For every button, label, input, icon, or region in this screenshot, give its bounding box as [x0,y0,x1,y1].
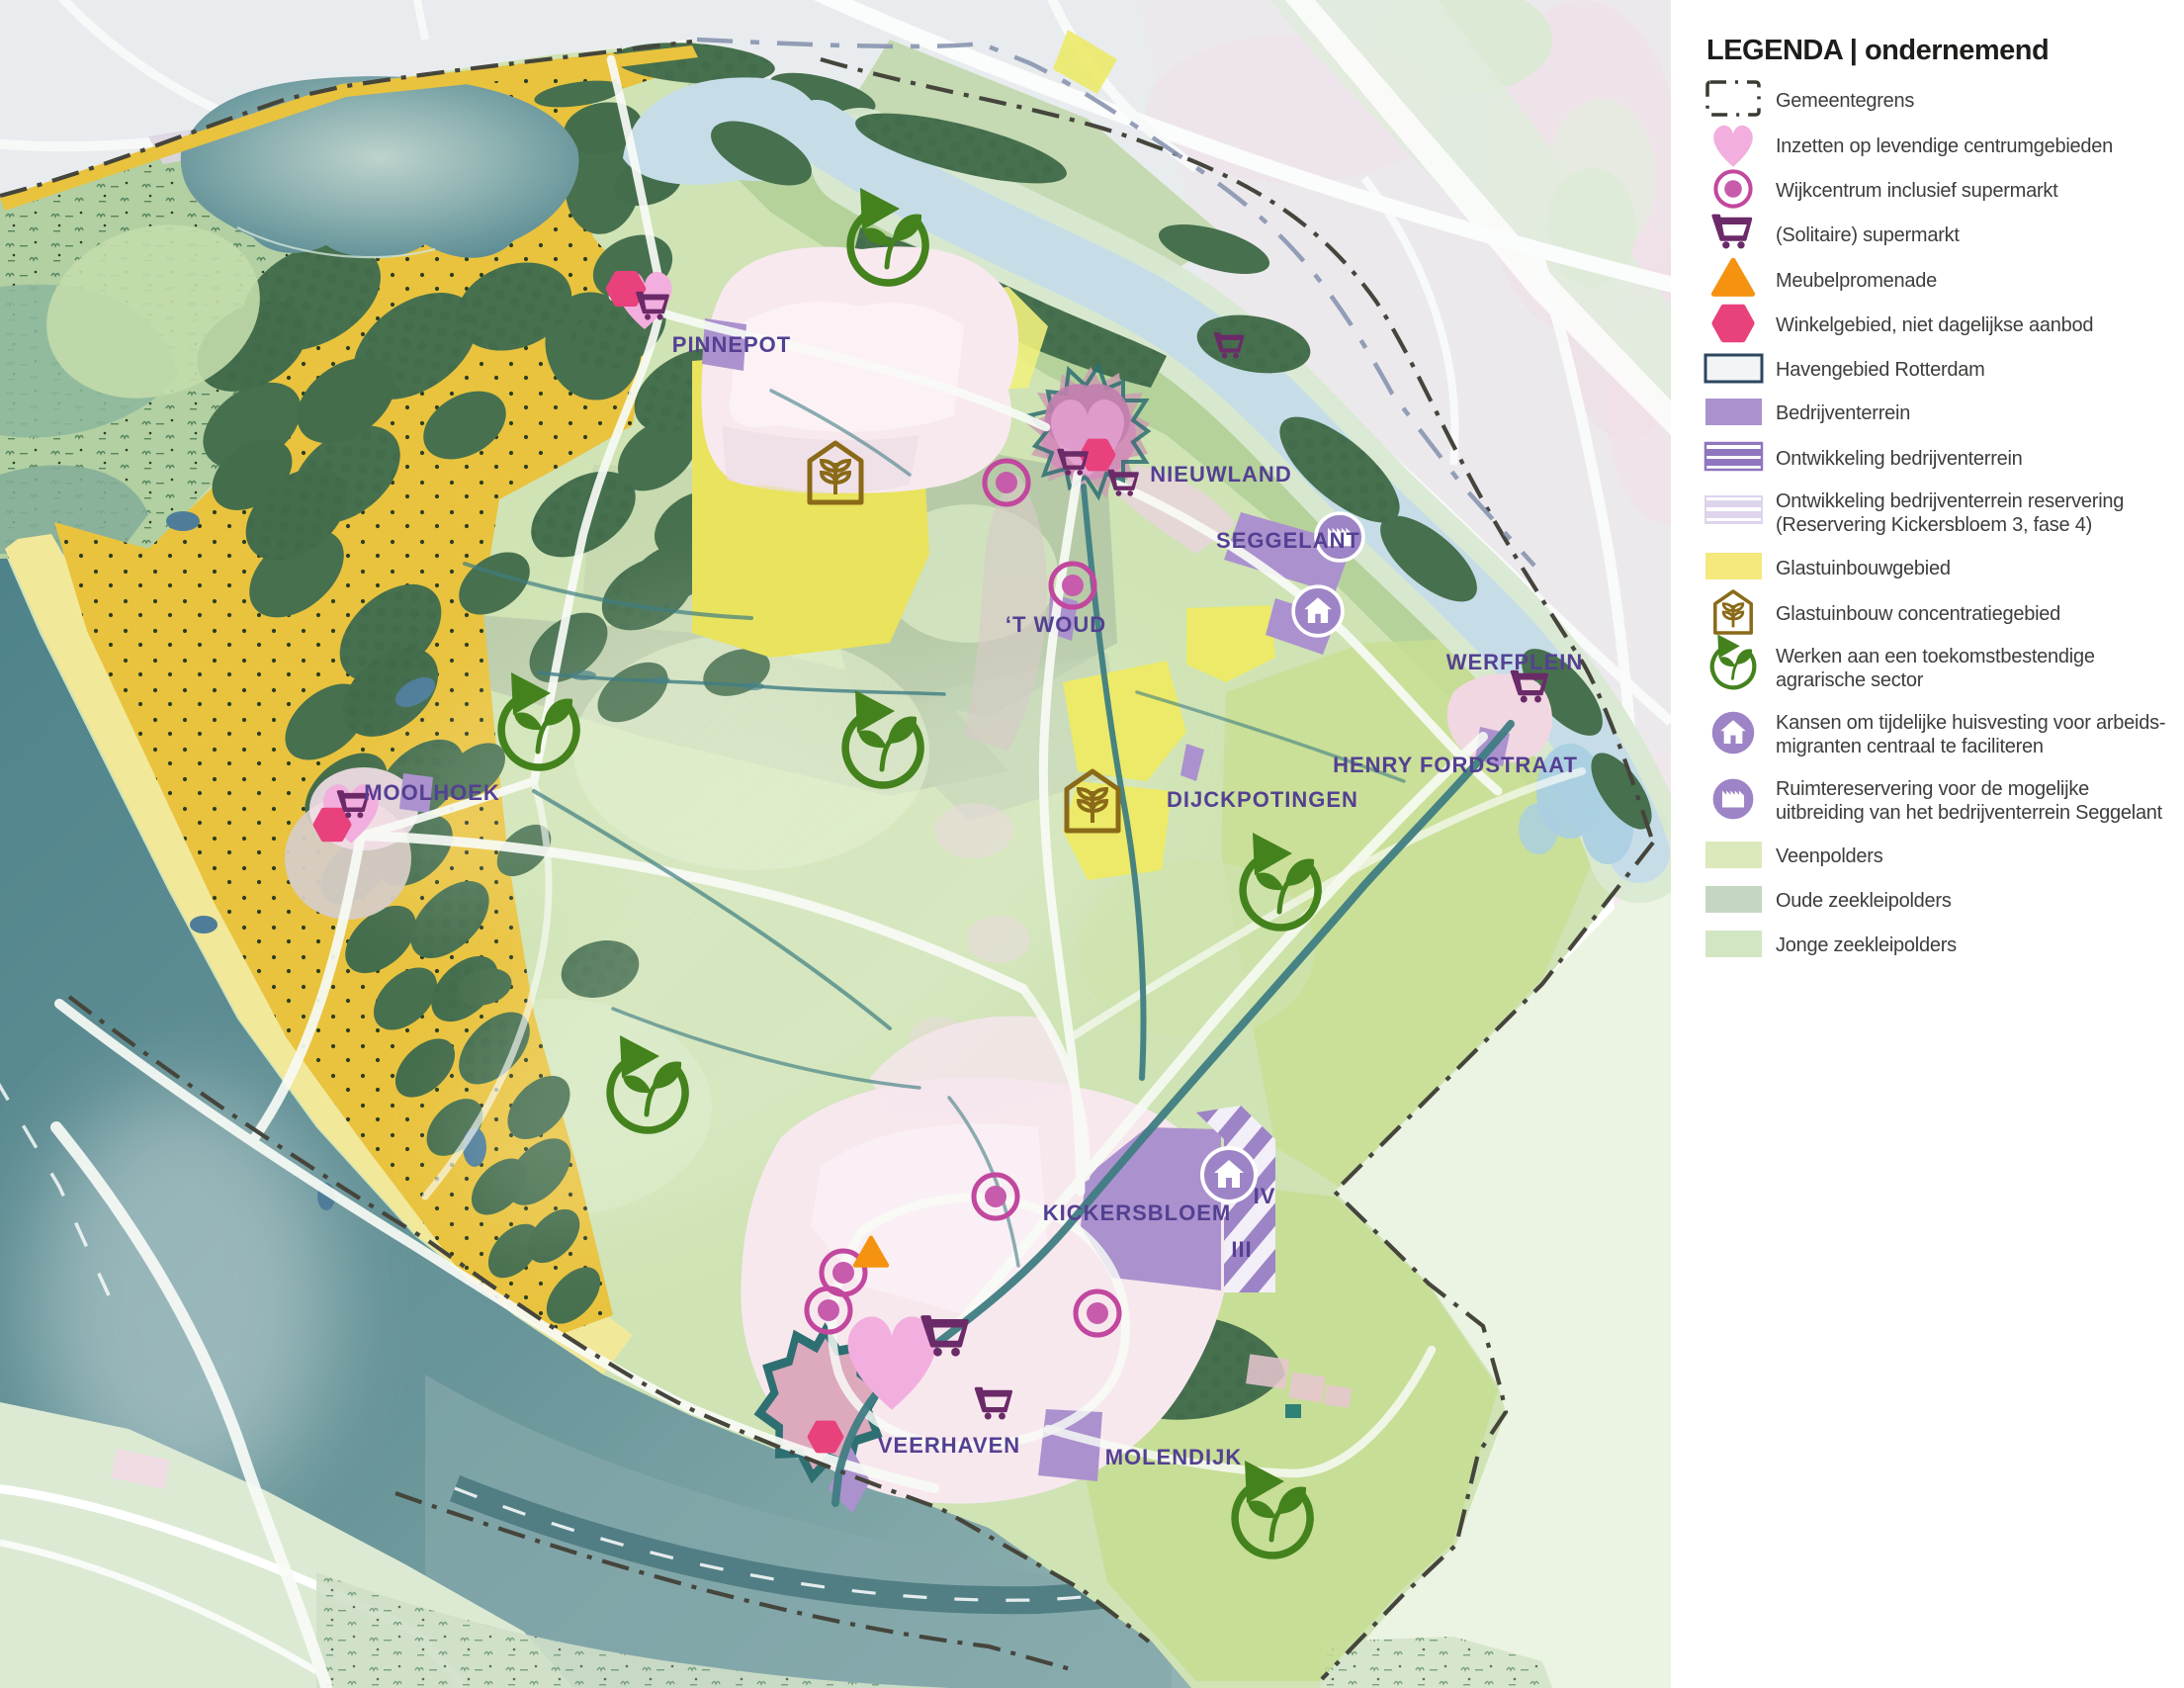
svg-text:WERFPLEIN: WERFPLEIN [1446,650,1584,674]
svg-text:Bedrijventerrein: Bedrijventerrein [1776,402,1910,424]
svg-text:KICKERSBLOEM: KICKERSBLOEM [1043,1200,1231,1225]
svg-text:‘T WOUD: ‘T WOUD [1005,612,1106,637]
svg-text:HENRY FORDSTRAAT: HENRY FORDSTRAAT [1333,753,1578,777]
svg-text:SEGGELANT: SEGGELANT [1216,528,1360,553]
svg-text:(Solitaire) supermarkt: (Solitaire) supermarkt [1776,224,1960,246]
svg-text:Ontwikkeling bedrijventerrein: Ontwikkeling bedrijventerrein [1776,448,2023,470]
svg-text:migranten centraal te facilite: migranten centraal te faciliteren [1776,736,2044,757]
svg-text:Glastuinbouwgebied: Glastuinbouwgebied [1776,558,1951,579]
svg-text:NIEUWLAND: NIEUWLAND [1150,462,1291,487]
svg-text:Werken aan een toekomstbestend: Werken aan een toekomstbestendige [1776,646,2095,667]
svg-text:Winkelgebied, niet dagelijkse: Winkelgebied, niet dagelijkse aanbod [1776,314,2093,336]
svg-text:(Reservering Kickersbloem 3, f: (Reservering Kickersbloem 3, fase 4) [1776,514,2092,536]
svg-text:VEERHAVEN: VEERHAVEN [878,1433,1020,1458]
svg-text:MOLENDIJK: MOLENDIJK [1105,1445,1243,1469]
svg-text:Veenpolders: Veenpolders [1776,845,1883,867]
svg-text:LEGENDA | ondernemend: LEGENDA | ondernemend [1706,35,2049,66]
svg-text:agrarische sector: agrarische sector [1776,669,1924,691]
svg-text:IV: IV [1254,1184,1276,1208]
svg-text:uitbreiding van het bedrijvent: uitbreiding van het bedrijventerrein Seg… [1776,802,2163,824]
svg-text:Wijkcentrum inclusief supermar: Wijkcentrum inclusief supermarkt [1776,180,2058,202]
svg-text:III: III [1231,1237,1252,1262]
svg-text:Kansen om tijdelijke huisvesti: Kansen om tijdelijke huisvesting voor ar… [1776,712,2165,734]
svg-text:Oude zeekleipolders: Oude zeekleipolders [1776,890,1952,912]
svg-text:DIJCKPOTINGEN: DIJCKPOTINGEN [1167,787,1358,812]
svg-text:Gemeentegrens: Gemeentegrens [1776,90,1914,112]
svg-text:Havengebied Rotterdam: Havengebied Rotterdam [1776,359,1985,381]
svg-text:Meubelpromenade: Meubelpromenade [1776,270,1937,292]
svg-text:Ontwikkeling bedrijventerrein: Ontwikkeling bedrijventerrein reserverin… [1776,490,2124,512]
svg-text:Inzetten op levendige centrumg: Inzetten op levendige centrumgebieden [1776,135,2113,157]
svg-text:Jonge zeekleipolders: Jonge zeekleipolders [1776,934,1957,956]
svg-text:PINNEPOT: PINNEPOT [672,332,791,357]
svg-text:Glastuinbouw concentratiegebie: Glastuinbouw concentratiegebied [1776,603,2060,625]
svg-text:Ruimtereservering voor de moge: Ruimtereservering voor de mogelijke [1776,778,2089,800]
svg-text:MOOLHOEK: MOOLHOEK [364,780,500,805]
